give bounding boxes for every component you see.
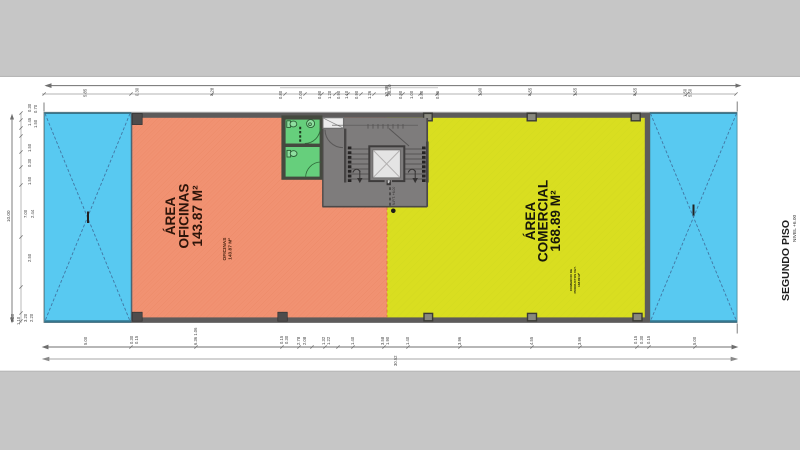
svg-text:1.50: 1.50 (27, 143, 32, 152)
svg-text:2.08: 2.08 (302, 336, 307, 345)
svg-text:0.86: 0.86 (435, 90, 440, 99)
svg-text:4.55: 4.55 (633, 87, 638, 96)
svg-text:7.00: 7.00 (23, 209, 28, 218)
svg-text:1.90: 1.90 (478, 87, 483, 96)
svg-text:N.P.T. +6.00: N.P.T. +6.00 (392, 187, 396, 205)
svg-text:0.90: 0.90 (398, 90, 403, 99)
svg-text:NIVEL +6.00: NIVEL +6.00 (792, 215, 798, 242)
svg-text:0.30: 0.30 (639, 335, 644, 344)
svg-text:1.10: 1.10 (16, 316, 21, 325)
svg-text:1.55: 1.55 (573, 87, 578, 96)
svg-text:6.36 1.06: 6.36 1.06 (193, 327, 198, 345)
svg-text:2.50: 2.50 (27, 253, 32, 262)
svg-text:2.44: 2.44 (30, 209, 35, 218)
svg-text:SEGUNDO PISO: SEGUNDO PISO (780, 220, 792, 301)
svg-text:0.15: 0.15 (646, 335, 651, 344)
svg-text:2.00: 2.00 (298, 90, 303, 99)
svg-text:5.00: 5.00 (692, 336, 697, 345)
svg-text:0.80: 0.80 (278, 90, 283, 99)
svg-text:1.40: 1.40 (405, 336, 410, 345)
svg-text:1.10: 1.10 (344, 90, 349, 99)
svg-text:0.70: 0.70 (33, 104, 38, 113)
svg-text:1.20: 1.20 (327, 90, 332, 99)
svg-text:1.50: 1.50 (33, 119, 38, 128)
svg-text:10.36: 10.36 (384, 85, 389, 97)
svg-text:1.40: 1.40 (350, 336, 355, 345)
svg-text:4.28: 4.28 (210, 87, 215, 96)
svg-text:2.20: 2.20 (29, 313, 34, 322)
svg-text:0.90: 0.90 (336, 90, 341, 99)
svg-text:3.20: 3.20 (23, 313, 28, 322)
svg-text:1.26: 1.26 (367, 90, 372, 99)
svg-text:0.90: 0.90 (317, 90, 322, 99)
svg-text:0.30: 0.30 (284, 335, 289, 344)
svg-text:3.96: 3.96 (457, 336, 462, 345)
svg-text:1.00: 1.00 (409, 90, 414, 99)
svg-text:1.50: 1.50 (27, 176, 32, 185)
svg-text:0.80: 0.80 (419, 90, 424, 99)
svg-text:4.55: 4.55 (528, 87, 533, 96)
svg-text:OFICINAS143.87 M²: OFICINAS143.87 M² (222, 237, 233, 261)
svg-text:0.30: 0.30 (10, 313, 15, 322)
svg-text:10.00: 10.00 (6, 210, 11, 222)
svg-text:0.30: 0.30 (27, 103, 32, 112)
svg-text:5.50: 5.50 (688, 88, 693, 97)
svg-text:0.30: 0.30 (135, 87, 140, 96)
svg-text:0.15: 0.15 (134, 335, 139, 344)
svg-text:0.15: 0.15 (633, 335, 638, 344)
svg-text:4.55: 4.55 (529, 336, 534, 345)
svg-text:3.96: 3.96 (577, 336, 582, 345)
svg-text:1.90: 1.90 (385, 336, 390, 345)
svg-text:1.45: 1.45 (27, 117, 32, 126)
svg-text:0.30: 0.30 (27, 158, 32, 167)
svg-text:0.90: 0.90 (354, 90, 359, 99)
svg-text:30.52: 30.52 (393, 355, 398, 366)
svg-text:5.85: 5.85 (83, 88, 88, 97)
svg-text:5.00: 5.00 (83, 336, 88, 345)
svg-text:1.22: 1.22 (326, 336, 331, 345)
svg-text:2.78: 2.78 (296, 336, 301, 345)
